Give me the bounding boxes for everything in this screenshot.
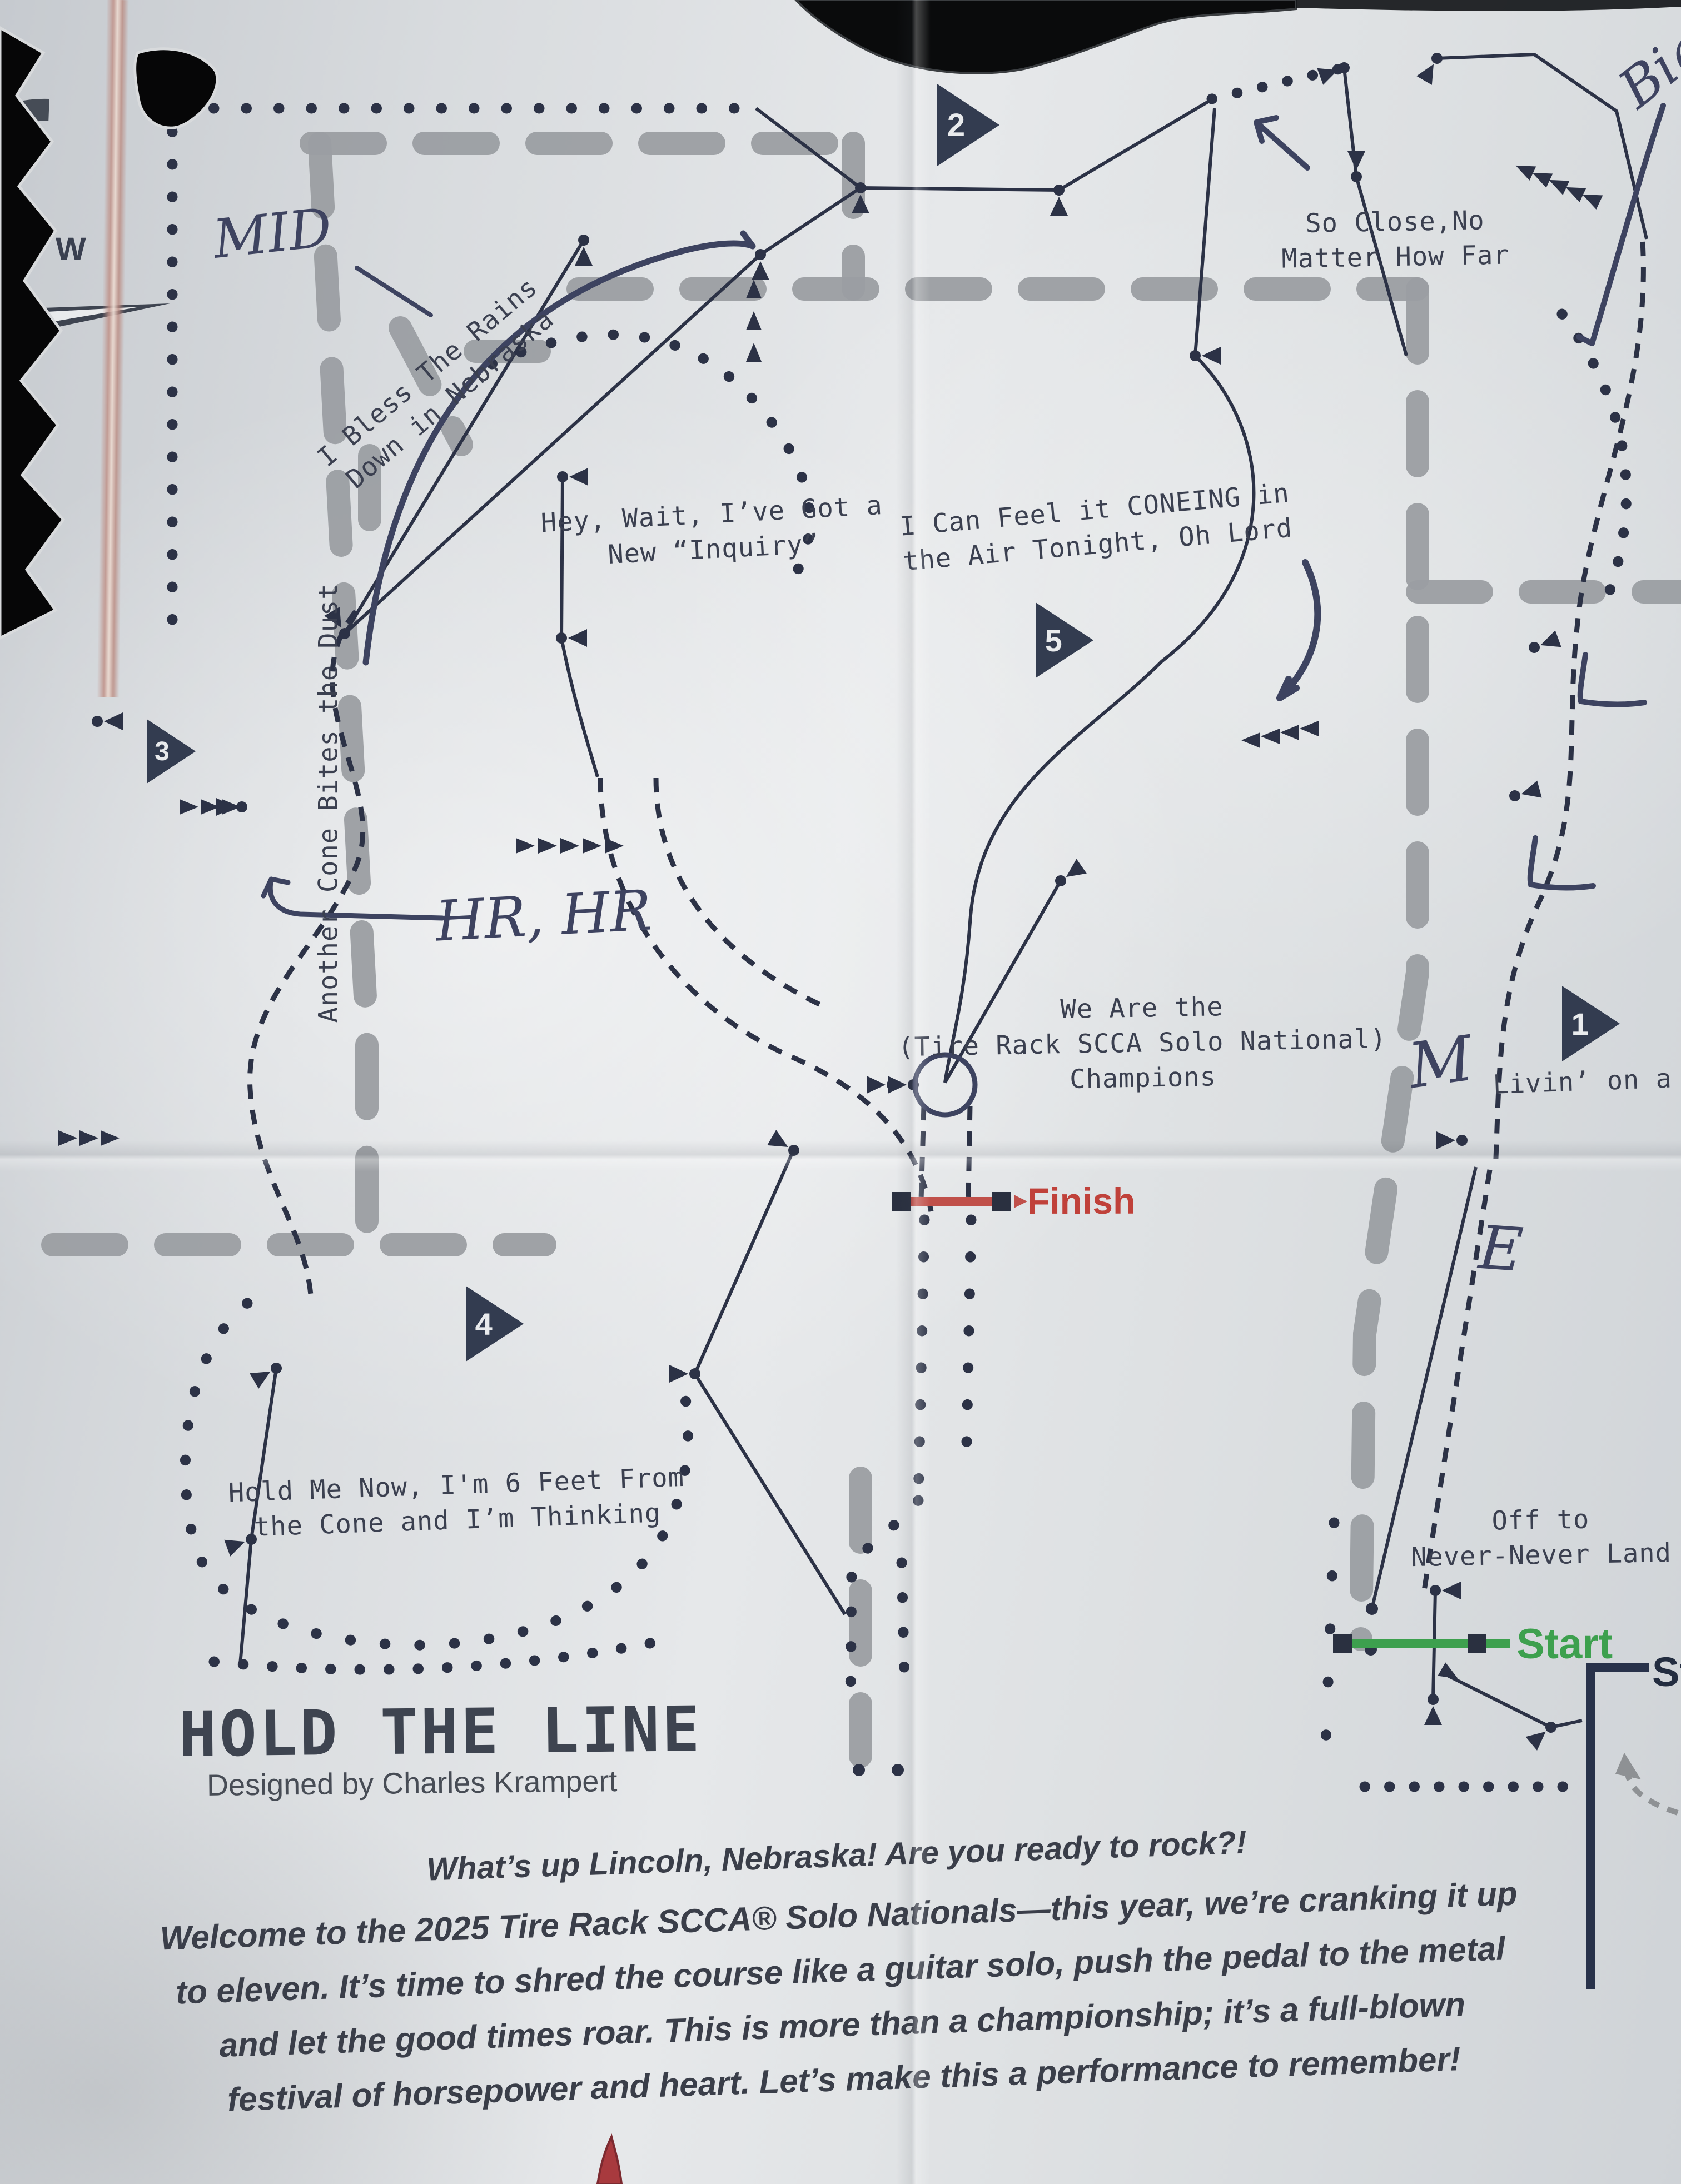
handwritten-e: E: [1476, 1213, 1525, 1285]
dashed-boundary: [600, 778, 931, 1211]
dashed-boundary: [656, 778, 823, 1006]
handwritten-hr-hr: HR, HR: [434, 877, 653, 954]
direction-pointer: [1241, 732, 1260, 748]
compass-west-label: W: [56, 231, 86, 268]
handwritten-m: M: [1404, 1023, 1478, 1103]
lone-cone-dot: [892, 1764, 904, 1776]
cone-dots: [214, 1639, 670, 1669]
direction-pointer: [79, 1130, 98, 1146]
staging-label: Staging: [1652, 1649, 1681, 1695]
gate-line: [1195, 108, 1215, 356]
label-so-close: So Close,NoMatter How Far: [1280, 133, 1511, 347]
direction-pointer: [538, 838, 557, 854]
direction-pointer: [101, 1130, 120, 1146]
gate-line: [695, 1153, 792, 1374]
cone-marker: [752, 249, 769, 280]
label-hold-me-now: Hold Me Now, I'm 6 Feet Fromthe Cone and…: [226, 1390, 689, 1616]
cone-dots: [1326, 1523, 1334, 1742]
cone-marker: [767, 1130, 803, 1161]
cone-marker: [1507, 781, 1541, 806]
pen-stroke: [1579, 106, 1663, 343]
direction-pointer: [605, 838, 624, 854]
direction-pointer: [560, 838, 579, 854]
cone-marker: [1436, 1131, 1468, 1149]
handwritten-mid: MID: [210, 196, 335, 271]
label-another-cone: Another Cone Bites the Dust: [242, 583, 417, 1023]
cone-marker: [92, 712, 123, 730]
cone-marker: [1526, 630, 1561, 657]
intro-text: What’s up Lincoln, Nebraska! Are you rea…: [0, 1809, 1681, 2135]
gate-line: [760, 188, 861, 255]
direction-pointer: [222, 799, 241, 815]
course-designer: Designed by Charles Krampert: [207, 1764, 618, 1803]
cone-dots: [966, 1220, 971, 1470]
cone-marker: [250, 1358, 285, 1389]
label-we-are-champions: We Are the(Tire Rack SCCA Solo National)…: [896, 917, 1389, 1170]
direction-pointer: [180, 799, 198, 815]
direction-pointer: [58, 1130, 77, 1146]
finish-label: Finish: [1027, 1180, 1135, 1221]
label-coneing: I Can Feel it CONEING inthe Air Tonight,…: [892, 406, 1300, 650]
direction-pointer: [1280, 725, 1299, 740]
direction-pointer: [746, 343, 762, 362]
gate-line: [1444, 1674, 1582, 1727]
staging-return-arrow: [1615, 1753, 1641, 1779]
direction-pointer: [1513, 158, 1536, 181]
pen-stroke: [1580, 655, 1644, 705]
cone-marker: [669, 1365, 700, 1383]
gate-line: [861, 101, 1209, 190]
gate-line: [561, 638, 598, 777]
pen-stroke: [1530, 838, 1593, 888]
cone-dots: [918, 1220, 924, 1500]
label-never-never-land: Off toNever-Never Land: [1409, 1431, 1673, 1646]
direction-pointer: [583, 838, 601, 854]
gate-line: [695, 1374, 845, 1614]
cone-marker: [1416, 49, 1448, 84]
red-flame-tip: [598, 2137, 621, 2184]
finish-line: Finish: [892, 1180, 1135, 1221]
direction-pointer: [746, 311, 762, 330]
direction-pointer: [516, 838, 535, 854]
lone-cone-dot: [853, 1764, 865, 1776]
direction-pointer: [1300, 721, 1319, 736]
cone-dots: [902, 1563, 905, 1701]
course-map-paper: Finish Start Staging I Bless The RainsDo: [0, 0, 1681, 2184]
label-hey-wait: Hey, Wait, I’ve Got aNew “Inquiry”: [536, 418, 889, 646]
cone-marker: [1424, 1694, 1442, 1725]
direction-pointer: [1261, 729, 1280, 744]
course-title: HOLD THE LINE: [178, 1693, 703, 1771]
